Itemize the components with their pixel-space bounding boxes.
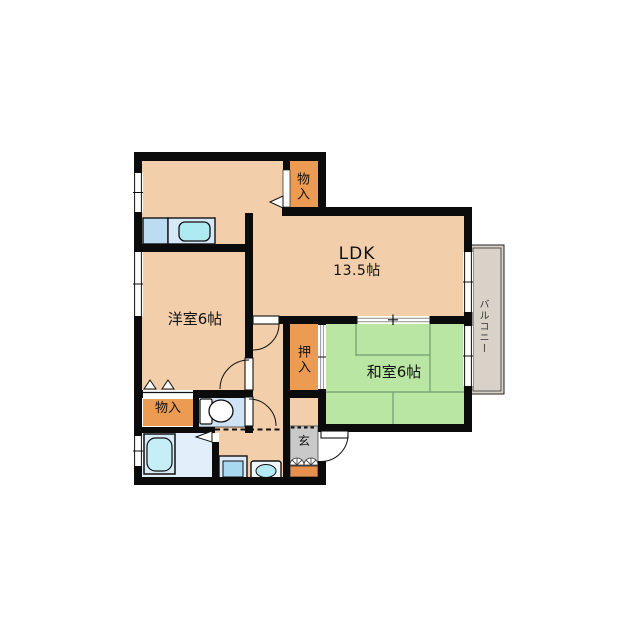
ldk-hall-door-leaf: [253, 316, 279, 324]
ldk-japanese-sliding-door: [357, 315, 430, 326]
floorplan-drawing: [0, 0, 640, 640]
closet-bottom-label: 物入: [144, 402, 192, 417]
balcony-label: バルコニー: [477, 287, 487, 365]
oshiire-label: 押入: [296, 331, 309, 389]
bathroom-door-opening: [212, 433, 219, 442]
toilet-door-leaf: [245, 397, 253, 426]
kitchen-counter: [143, 218, 168, 244]
wall-segment: [134, 427, 215, 433]
washbasin-icon: [223, 461, 243, 477]
entrance-door-leaf: [321, 431, 348, 438]
wall-segment: [193, 392, 199, 427]
toilet-bowl-icon: [209, 400, 233, 422]
japanese-room-balcony-window: [463, 326, 473, 386]
western-room-label: 洋室6帖: [147, 311, 243, 328]
japanese-room-label: 和室6帖: [346, 364, 442, 381]
closet-top-label: 物入: [295, 165, 308, 209]
western-room-door-leaf: [245, 358, 253, 390]
oshiire-sliding-door: [318, 325, 326, 389]
western-room-window: [133, 252, 143, 316]
wall-segment: [134, 477, 326, 485]
wall-segment: [282, 207, 472, 216]
wall-segment: [318, 152, 326, 216]
kitchen-window: [133, 173, 143, 212]
kitchen-sink-icon: [179, 222, 210, 241]
wall-segment: [318, 461, 326, 485]
washing-machine-icon: [256, 465, 276, 478]
ldk-balcony-window: [463, 252, 473, 312]
closet-bottom-door: [143, 390, 193, 399]
ldk-label: LDK: [322, 245, 392, 265]
wall-segment: [283, 316, 290, 485]
wall-segment: [134, 152, 326, 161]
floorplan-image: LDK 13.5帖 洋室6帖 和室6帖 物入 押入 物入 玄 バルコニー: [0, 0, 640, 640]
entrance-label: 玄: [296, 435, 312, 449]
wall-segment: [464, 207, 472, 432]
wall-segment: [134, 244, 253, 252]
ldk-size-label: 13.5帖: [318, 263, 396, 279]
bathtub-icon: [147, 438, 172, 471]
closet-top-door: [283, 170, 290, 207]
entrance-step: [290, 466, 318, 477]
bathroom-window: [133, 436, 143, 466]
